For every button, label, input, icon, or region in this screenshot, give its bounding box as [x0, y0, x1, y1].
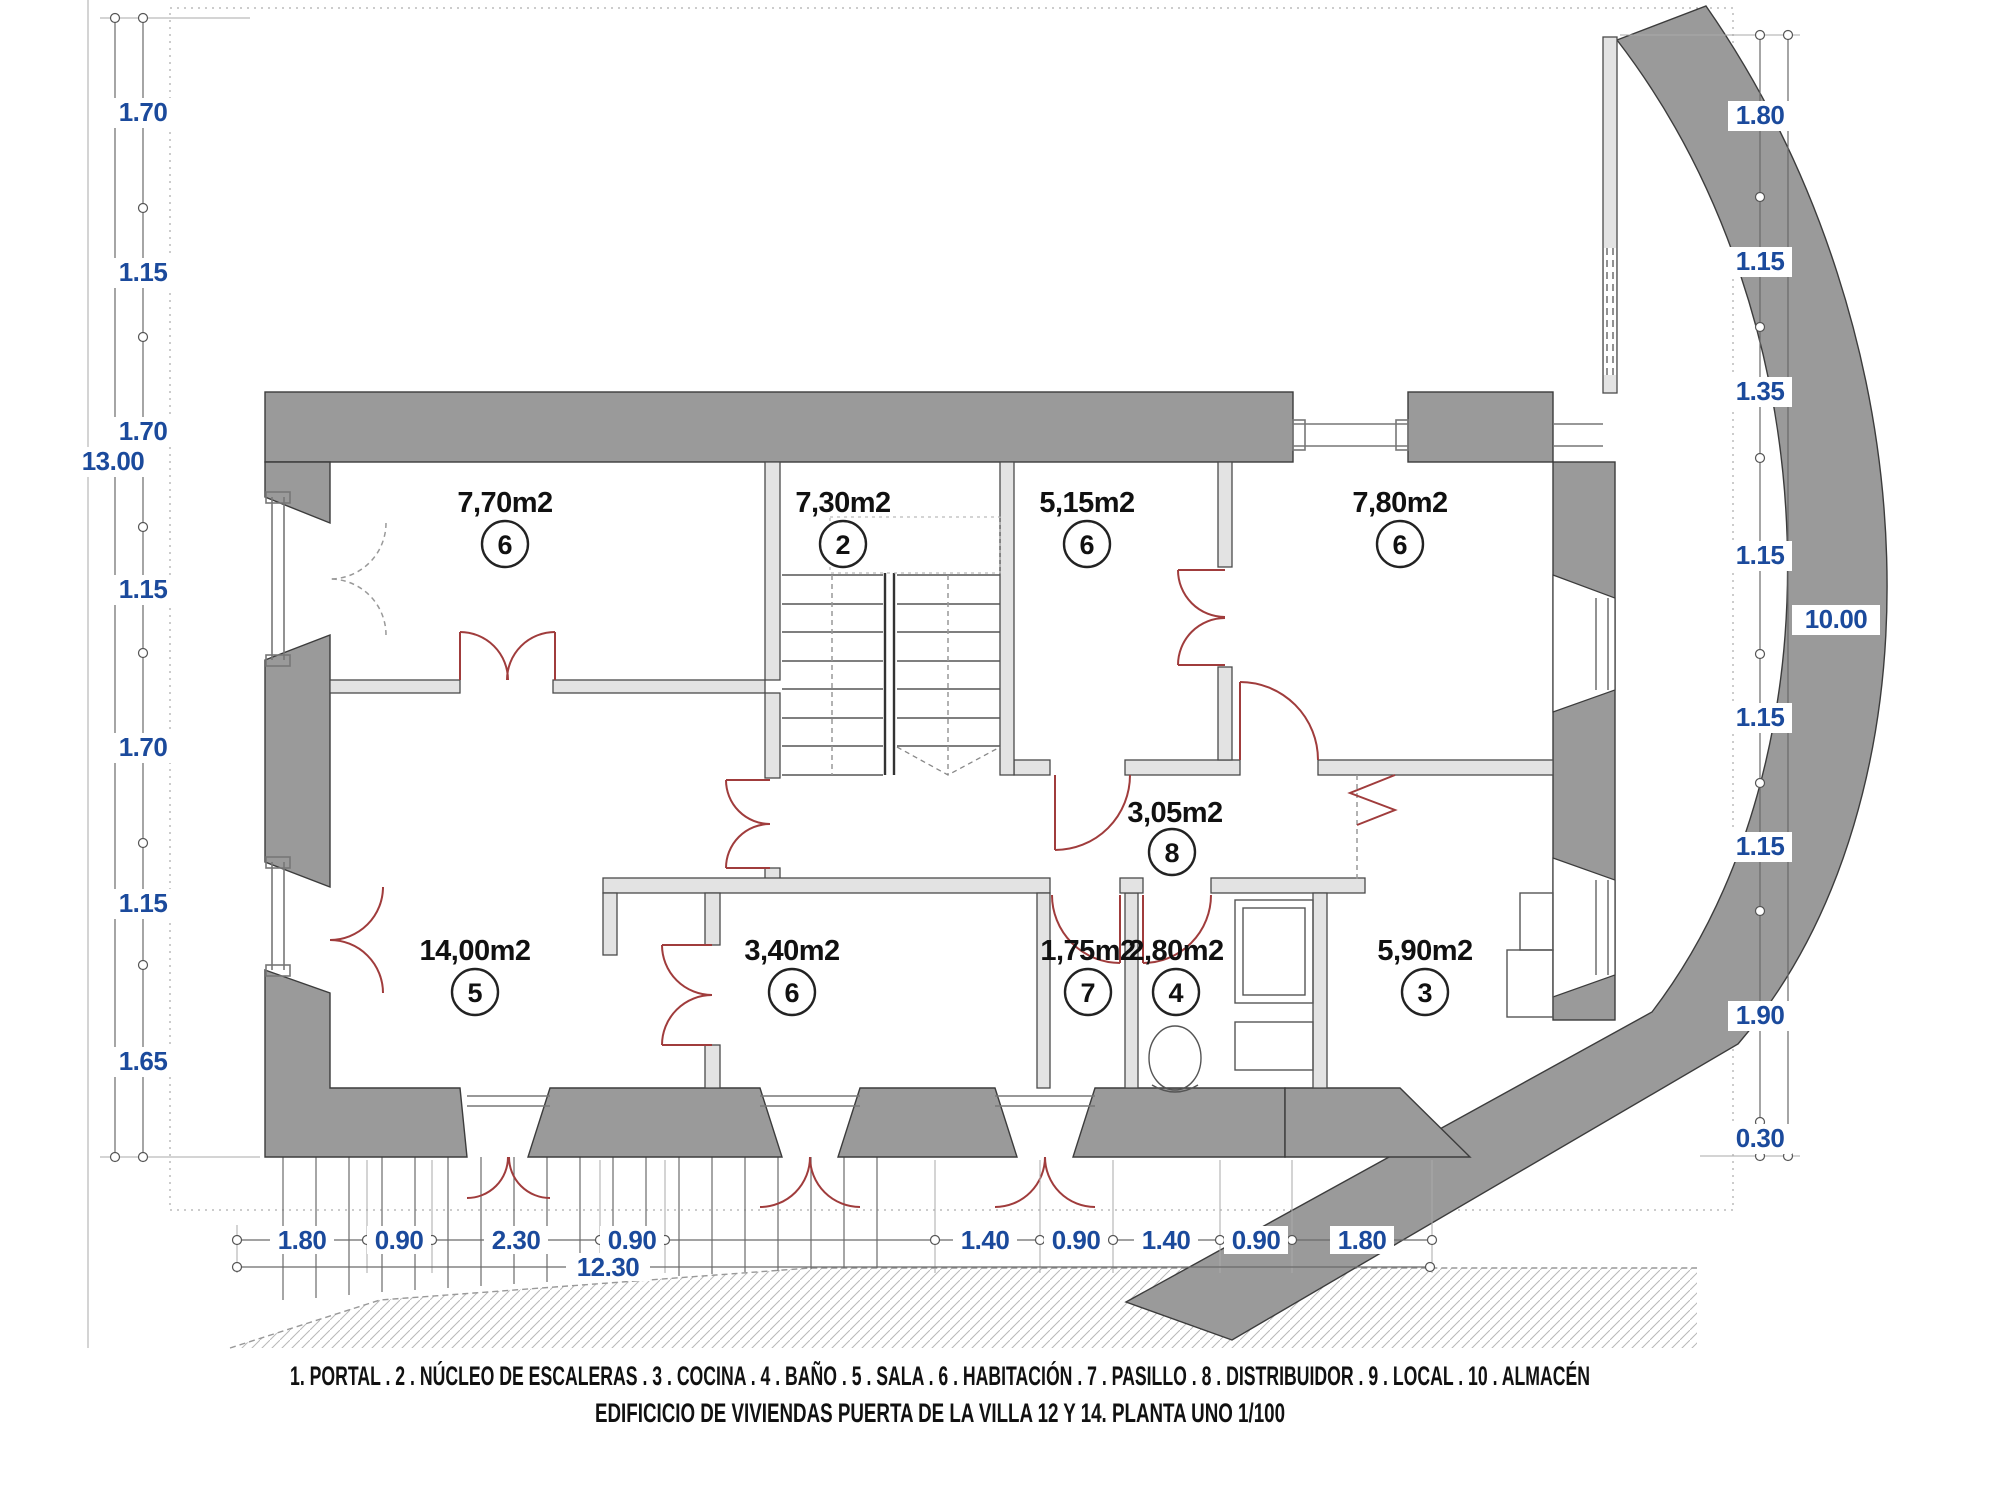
room-number: 5: [467, 978, 482, 1008]
double-door-hall: [726, 780, 770, 868]
dimension-label: 1.40: [961, 1225, 1010, 1255]
dimension-label: 0.90: [1052, 1225, 1101, 1255]
dimension-label: 1.15: [1736, 831, 1785, 861]
dimension-label: 1.70: [119, 416, 168, 446]
left-wall-middle: [265, 635, 330, 887]
door-room-780: [1240, 682, 1318, 760]
sink-counter: [1235, 1022, 1313, 1070]
balcony-door-arc: [330, 579, 386, 635]
top-wall: [265, 392, 1293, 462]
legend-line-1: 1. PORTAL . 2 . NÚCLEO DE ESCALERAS . 3 …: [290, 1360, 1590, 1391]
staircase: [782, 517, 1000, 775]
room-area-label: 7,30m2: [795, 487, 890, 519]
legend-line-2: EDIFICICIO DE VIVIENDAS PUERTA DE LA VIL…: [595, 1398, 1285, 1428]
balcony-door-arc: [330, 887, 383, 940]
dimension-label: 1.80: [1736, 100, 1785, 130]
double-door-room6-room5: [460, 632, 555, 680]
room-area-label: 14,00m2: [420, 935, 531, 967]
shower-tray-inner: [1243, 908, 1305, 995]
floor-plan-sheet: 7,70m2 6 7,30m2 2 5,15m2 6 7,80m2 6 3,05…: [0, 0, 2009, 1500]
bottom-pier-3: [1073, 1088, 1285, 1157]
top-wall-right: [1408, 392, 1553, 462]
dimension-label: 1.80: [278, 1225, 327, 1255]
right-window-2: [1553, 858, 1615, 997]
room-number: 7: [1080, 978, 1095, 1008]
room-number: 2: [835, 530, 850, 560]
dimension-label: 1.70: [119, 97, 168, 127]
dimension-label: 1.15: [119, 257, 168, 287]
room-area-label: 5,15m2: [1039, 487, 1134, 519]
room-number: 6: [1392, 530, 1407, 560]
dimensions-left: 1.70 1.15 1.70 1.15 1.70 1.15 1.65 13.00: [72, 14, 260, 1162]
double-door-room-340: [662, 945, 712, 1045]
balcony-door-arc: [330, 523, 386, 579]
left-wall-corner: [265, 970, 467, 1157]
room-number: 6: [497, 530, 512, 560]
floor-plan-drawing: 7,70m2 6 7,30m2 2 5,15m2 6 7,80m2 6 3,05…: [0, 0, 2009, 1500]
room-number: 6: [784, 978, 799, 1008]
dimension-label: 1.15: [1736, 246, 1785, 276]
dimension-label: 1.90: [1736, 1000, 1785, 1030]
bottom-pier-2: [838, 1088, 1017, 1157]
balcony-door-arc: [330, 940, 383, 993]
room-number: 6: [1079, 530, 1094, 560]
top-right-window: [1553, 424, 1603, 446]
dimension-label: 1.70: [119, 732, 168, 762]
dimension-label: 1.80: [1338, 1225, 1387, 1255]
stair-arrow: [897, 747, 1000, 775]
room-number: 4: [1168, 978, 1183, 1008]
dimension-label: 0.90: [375, 1225, 424, 1255]
room-area-label: 7,70m2: [457, 487, 552, 519]
shower-tray: [1235, 900, 1313, 1003]
dimension-label: 0.90: [1232, 1225, 1281, 1255]
room-area-label: 2,80m2: [1128, 935, 1223, 967]
top-window: [1293, 420, 1408, 450]
bottom-pier-1: [528, 1088, 782, 1157]
ground-hatch: [230, 1268, 1697, 1348]
toilet: [1149, 1026, 1201, 1090]
right-window-1: [1553, 575, 1615, 712]
dimension-label: 1.15: [1736, 540, 1785, 570]
dimension-label: 0.30: [1736, 1123, 1785, 1153]
dimension-label: 1.40: [1142, 1225, 1191, 1255]
dimension-label: 1.35: [1736, 376, 1785, 406]
dimension-total-label: 10.00: [1805, 604, 1868, 634]
room-area-label: 3,05m2: [1127, 797, 1222, 829]
dimension-total-label: 13.00: [82, 446, 145, 476]
room-number: 8: [1164, 838, 1179, 868]
plot-boundary: [170, 8, 1733, 1210]
double-door-bedrooms: [1178, 570, 1225, 665]
dimension-label: 1.15: [119, 574, 168, 604]
dimension-label: 0.90: [608, 1225, 657, 1255]
bottom-pier-4: [1285, 1088, 1470, 1157]
legend: 1. PORTAL . 2 . NÚCLEO DE ESCALERAS . 3 …: [290, 1360, 1590, 1428]
room-area-label: 3,40m2: [744, 935, 839, 967]
room-area-label: 7,80m2: [1352, 487, 1447, 519]
door-room-515: [1055, 775, 1130, 850]
kitchen-counter: [1507, 893, 1553, 1017]
doors: [460, 570, 1395, 1045]
wall-break-symbol: [1350, 775, 1395, 825]
room-number: 3: [1417, 978, 1432, 1008]
dimension-total-label: 12.30: [577, 1252, 640, 1282]
top-right-window-gap: [1604, 248, 1616, 375]
dimension-label: 1.65: [119, 1046, 168, 1076]
room-area-label: 1,75m2: [1040, 935, 1135, 967]
room-area-label: 5,90m2: [1377, 935, 1472, 967]
dimension-label: 1.15: [1736, 702, 1785, 732]
dimension-label: 2.30: [492, 1225, 541, 1255]
dimension-label: 1.15: [119, 888, 168, 918]
